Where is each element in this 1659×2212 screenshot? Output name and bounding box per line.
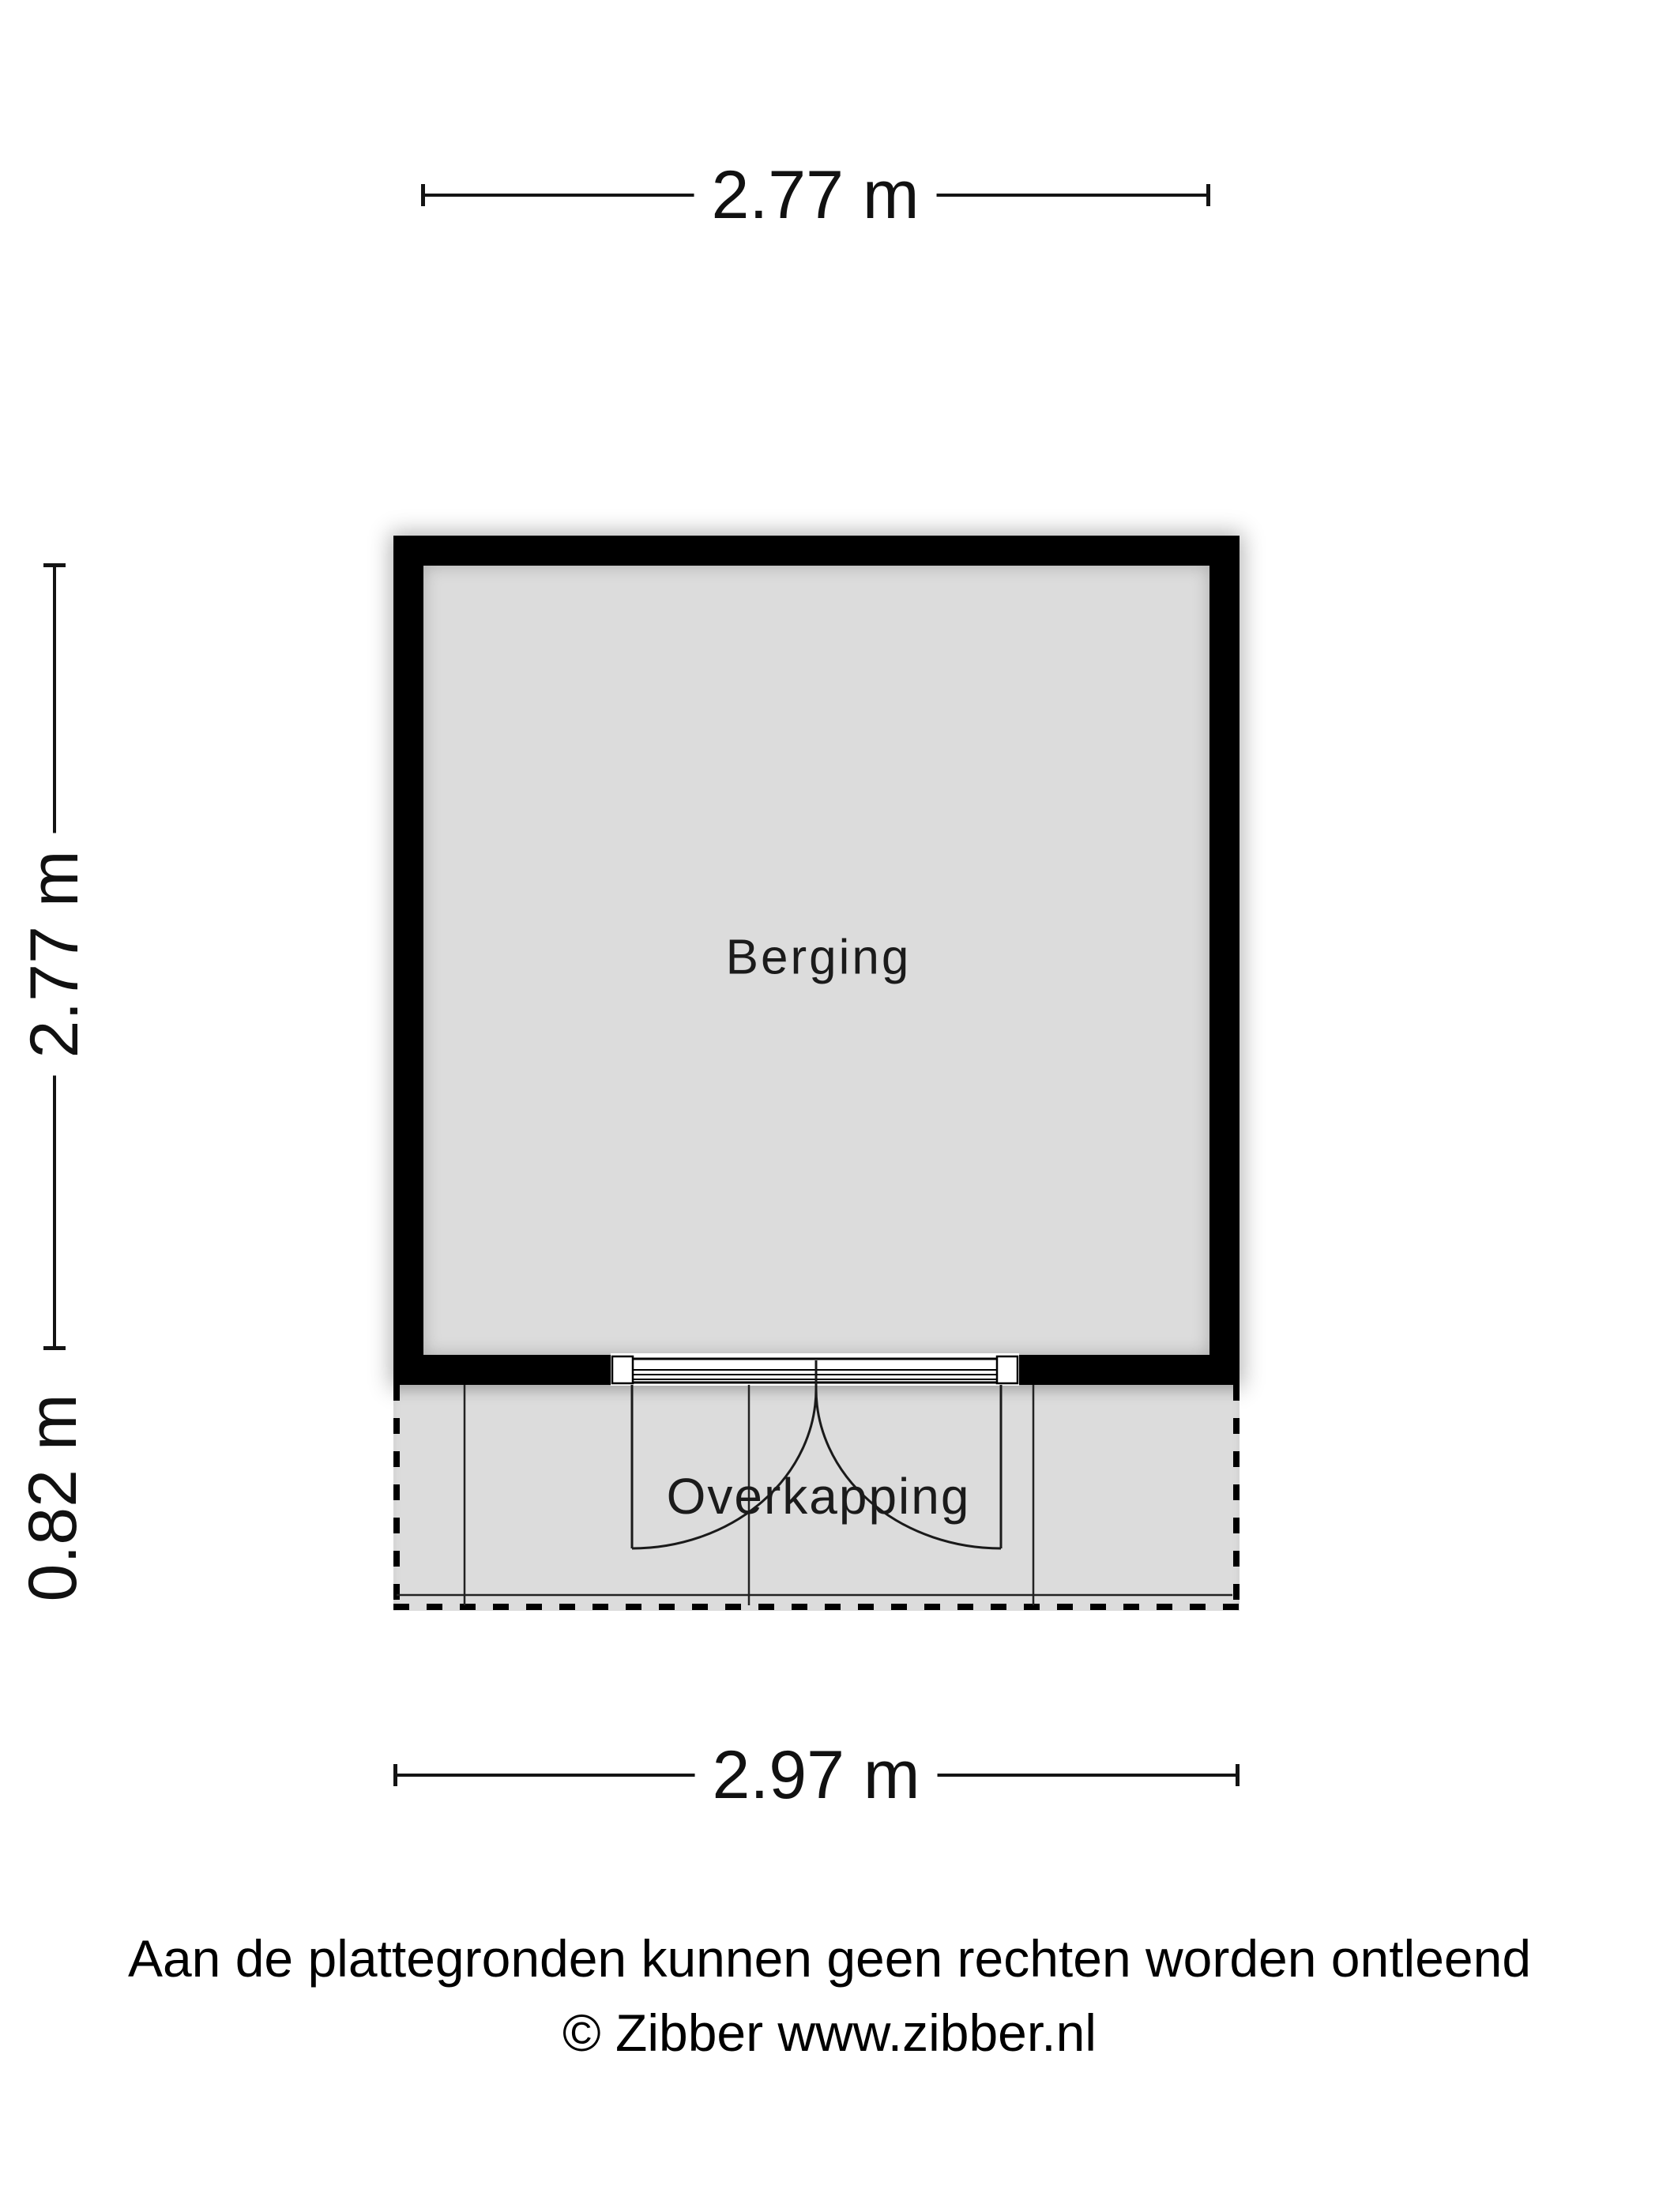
top-dimension-label: 2.77 m <box>694 156 937 234</box>
side-lower-dimension-label: 0.82 m <box>14 1377 92 1619</box>
room-label-berging: Berging <box>726 930 912 986</box>
floorplan-page: 2.77 m 2.77 m 0.82 m <box>0 0 1659 2212</box>
side-upper-dimension-bottom-tick <box>43 1346 66 1350</box>
footer-credit: © Zibber www.zibber.nl <box>0 2002 1659 2064</box>
footer-disclaimer: Aan de plattegronden kunnen geen rechten… <box>0 1928 1659 1990</box>
bottom-dimension-right-tick <box>1236 1764 1240 1786</box>
top-dimension-left-tick <box>421 184 425 206</box>
bottom-dimension-left-tick <box>393 1764 397 1786</box>
bottom-dimension-label: 2.97 m <box>695 1736 938 1814</box>
top-dimension-right-tick <box>1206 184 1210 206</box>
side-upper-dimension-top-tick <box>43 563 66 567</box>
room-label-overkapping: Overkapping <box>667 1467 971 1525</box>
side-upper-dimension-label: 2.77 m <box>16 833 93 1076</box>
